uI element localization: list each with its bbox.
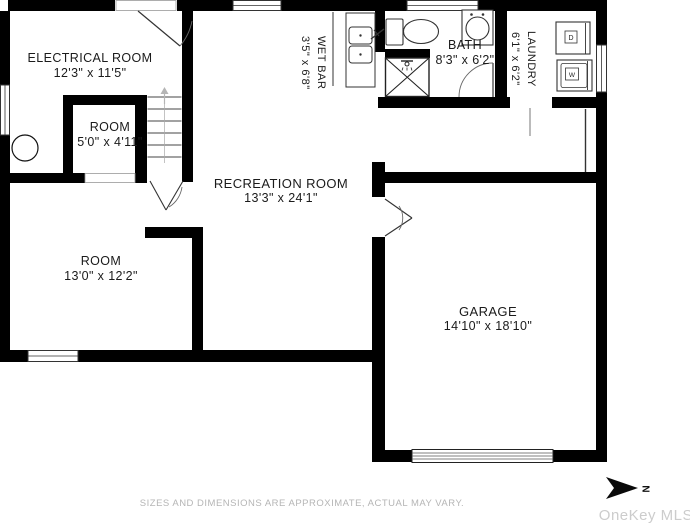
room-label-wetbar: WET BAR 3'5" x 6'8"	[296, 20, 328, 105]
wall-room-top-stub	[145, 227, 203, 238]
room-label-closet: ROOM 5'0" x 4'11"	[77, 120, 142, 150]
room-name: BATH	[435, 38, 494, 53]
room-dims: 14'10" x 18'10"	[444, 319, 532, 334]
closet-doorway	[85, 174, 135, 183]
watermark: OneKey MLS	[599, 507, 690, 524]
room-label-bath: BATH 8'3" x 6'2"	[435, 38, 494, 68]
wall-top-b	[177, 0, 233, 11]
room-dims: 13'3" x 24'1"	[214, 191, 348, 206]
room-name: ELECTRICAL ROOM	[27, 51, 152, 66]
dryer-label: D	[568, 35, 573, 42]
window-top-right	[407, 1, 478, 11]
room-dims: 8'3" x 6'2"	[435, 53, 494, 68]
wall-bottom-left	[0, 350, 384, 362]
room-label-electrical: ELECTRICAL ROOM 12'3" x 11'5"	[27, 51, 152, 81]
dryer: D	[556, 22, 590, 54]
washer-label: W	[569, 72, 576, 79]
wall-stairs-right	[182, 11, 193, 182]
wall-wetbar-right	[375, 11, 385, 52]
wall-top-a	[8, 0, 115, 11]
room-label-laundry: LAUNDRY 6'1" x 6'2"	[506, 20, 538, 98]
room-label-room: ROOM 13'0" x 12'2"	[64, 254, 138, 284]
toilet	[386, 19, 439, 45]
room-dims: 12'3" x 11'5"	[27, 66, 152, 81]
wall-left	[0, 11, 10, 360]
disclaimer-text: SIZES AND DIMENSIONS ARE APPROXIMATE, AC…	[140, 498, 464, 509]
room-name: LAUNDRY	[522, 20, 538, 98]
wall-electrical-bottom	[8, 173, 85, 183]
window-top-left	[233, 1, 281, 11]
wall-garage-left-lower	[372, 237, 385, 450]
room-name: ROOM	[64, 254, 138, 269]
bath-door	[459, 63, 493, 97]
wall-right	[596, 0, 607, 462]
wall-hall-bottom-a	[378, 97, 510, 108]
washer: W	[557, 60, 592, 91]
wall-garage-top	[385, 172, 596, 183]
room-label-garage: GARAGE 14'10" x 18'10"	[444, 304, 532, 334]
wall-garage-left-upper	[372, 162, 385, 197]
stairs-bottom-door	[150, 181, 183, 210]
wall-top-d	[478, 0, 596, 11]
north-arrow-icon: N	[606, 477, 651, 499]
boiler-tank	[12, 135, 38, 161]
north-label: N	[640, 485, 651, 492]
room-name: RECREATION ROOM	[214, 176, 348, 191]
wall-garage-bottom	[372, 450, 607, 462]
room-dims: 13'0" x 12'2"	[64, 269, 138, 284]
room-name: WET BAR	[312, 20, 328, 105]
room-dims: 3'5" x 6'8"	[296, 20, 312, 105]
room-dims: 5'0" x 4'11"	[77, 135, 142, 150]
wall-closet-top	[63, 95, 147, 105]
room-label-recreation: RECREATION ROOM 13'3" x 24'1"	[214, 176, 348, 206]
room-name: GARAGE	[444, 304, 532, 319]
stairs-up-arrow-icon	[161, 87, 169, 104]
wall-top-c	[281, 0, 407, 11]
room-name: ROOM	[77, 120, 142, 135]
garage-entry-door	[385, 199, 412, 236]
wall-hall-bottom-b	[552, 97, 596, 108]
shower-stall	[386, 58, 430, 97]
room-dims: 6'1" x 6'2"	[506, 20, 522, 98]
wall-closet-left	[63, 105, 73, 183]
stairs	[148, 92, 182, 163]
floor-plan-canvas: D W N ELECTRICAL ROOM	[0, 0, 690, 527]
wall-shower-top	[385, 49, 430, 58]
wall-room-right	[192, 238, 203, 350]
